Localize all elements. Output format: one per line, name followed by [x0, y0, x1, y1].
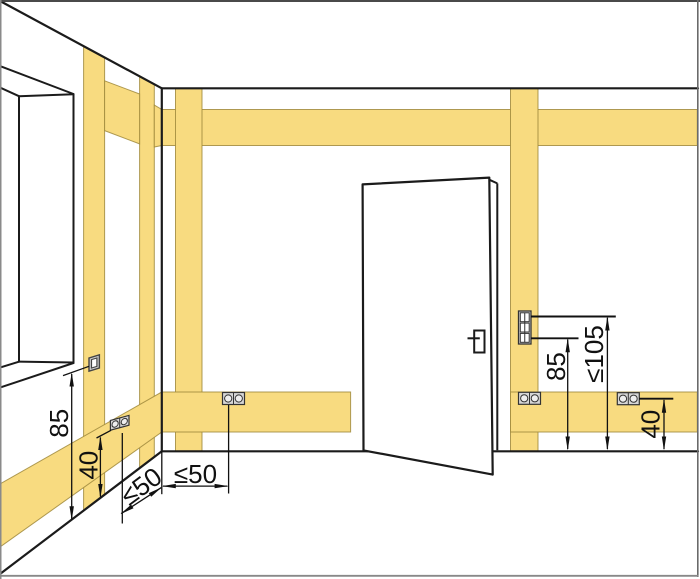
svg-text:85: 85 [44, 409, 74, 438]
svg-text:≤50: ≤50 [174, 459, 217, 489]
svg-text:≤105: ≤105 [579, 325, 609, 383]
svg-text:85: 85 [541, 352, 571, 381]
svg-text:40: 40 [635, 410, 665, 439]
svg-text:40: 40 [73, 451, 103, 480]
